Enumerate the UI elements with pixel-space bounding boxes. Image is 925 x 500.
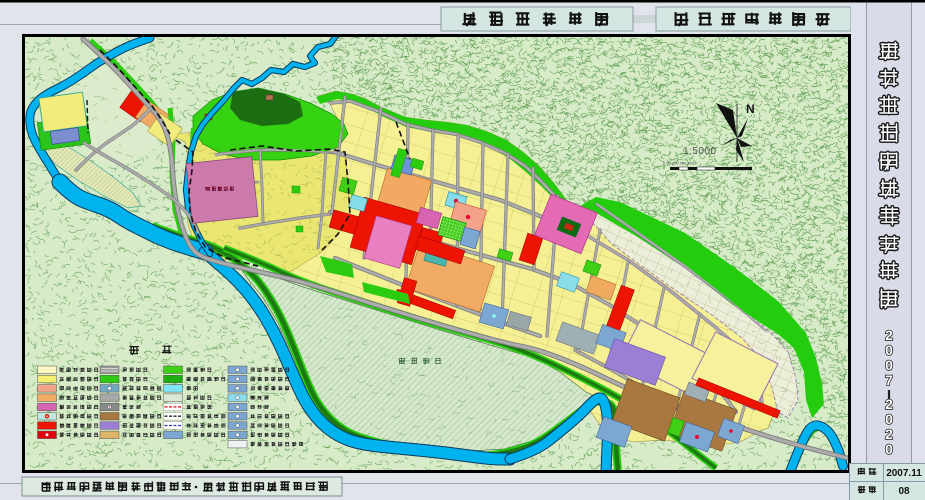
svg-text:7: 7	[885, 372, 893, 388]
svg-text:0 50 100 200 400m: 0 50 100 200 400m	[663, 161, 698, 166]
svg-text:08: 08	[898, 486, 910, 497]
svg-text:0: 0	[885, 411, 893, 427]
svg-text:0: 0	[885, 357, 893, 373]
svg-text:2: 2	[885, 396, 893, 412]
svg-text:0: 0	[885, 441, 893, 457]
svg-text:1:5000: 1:5000	[683, 146, 717, 157]
svg-text:2: 2	[885, 327, 893, 343]
svg-text:2: 2	[885, 426, 893, 442]
svg-text:2007.11: 2007.11	[886, 468, 922, 479]
svg-text:N: N	[746, 102, 755, 116]
svg-text:0: 0	[885, 342, 893, 358]
